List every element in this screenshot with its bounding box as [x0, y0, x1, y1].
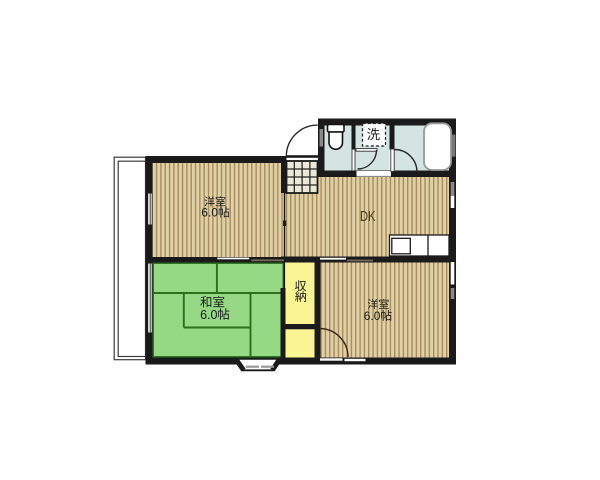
svg-text:DK: DK [360, 209, 376, 225]
svg-text:6.0: 6.0 [364, 309, 381, 323]
svg-text:6.0: 6.0 [201, 206, 218, 220]
svg-text:6.0: 6.0 [200, 308, 217, 322]
